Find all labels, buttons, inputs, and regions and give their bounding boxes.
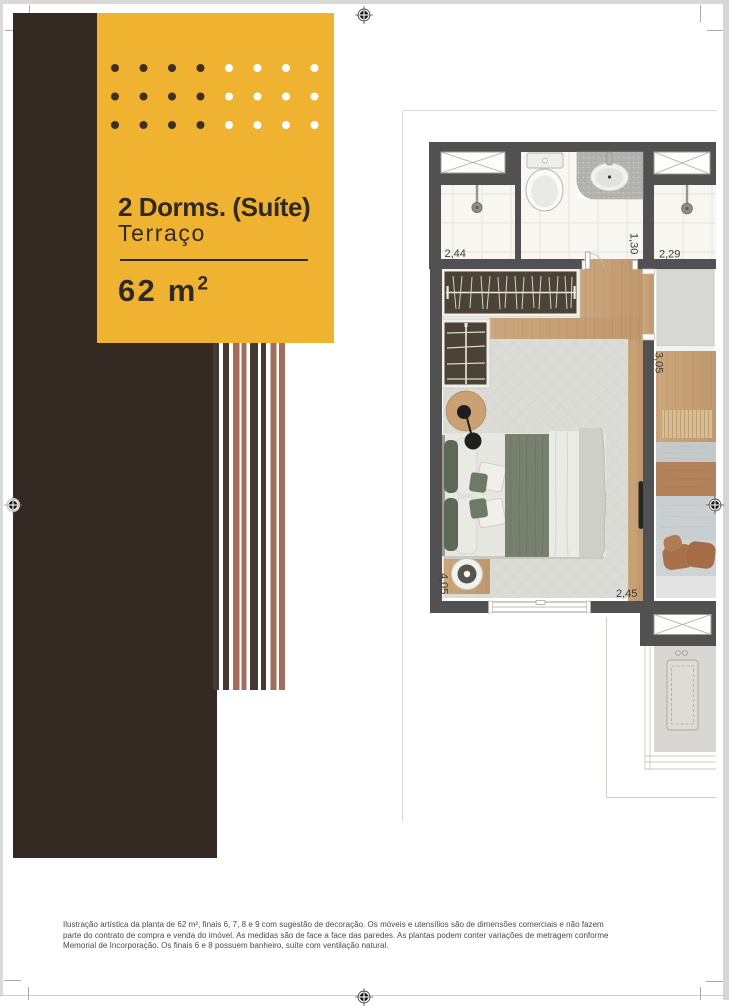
svg-text:2,45: 2,45	[616, 588, 637, 600]
svg-text:1,30: 1,30	[628, 233, 640, 254]
svg-text:4,05: 4,05	[438, 573, 450, 594]
svg-text:2,44: 2,44	[445, 248, 466, 260]
svg-text:2,29: 2,29	[659, 249, 680, 261]
svg-text:3,05: 3,05	[653, 352, 665, 373]
